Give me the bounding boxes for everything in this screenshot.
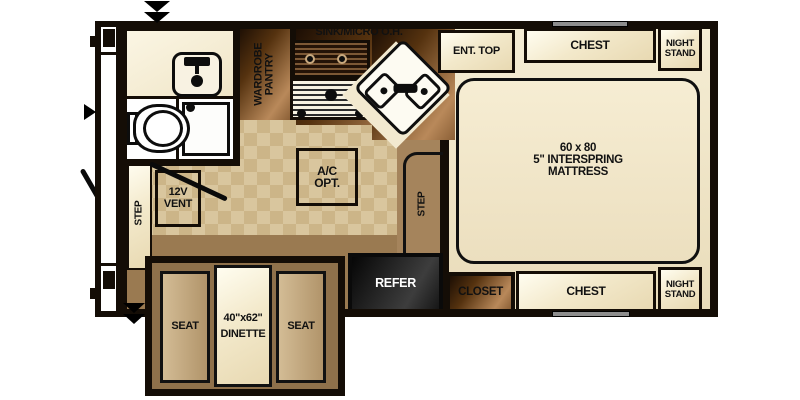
slide-arrow-icon xyxy=(123,303,145,313)
window-top xyxy=(552,21,628,27)
toilet-seat xyxy=(143,110,183,147)
faucet-icon xyxy=(393,84,417,93)
ac-opt-label: A/C OPT. xyxy=(314,165,339,189)
chest-top: CHEST xyxy=(524,28,656,63)
floorplan: WARDROBE PANTRY SINK/MICRO O.H. ENT. TOP… xyxy=(0,0,800,400)
front-step-label: STEP xyxy=(134,201,144,226)
right-wall xyxy=(710,21,718,317)
dinette-slide: SEAT 40"x62" DINETTE SEAT xyxy=(145,256,345,396)
night-stand-bottom-label: NIGHT STAND xyxy=(662,280,698,299)
roof-vent-arrow-icon xyxy=(144,12,170,23)
rear-wall-notch xyxy=(90,288,96,299)
burner-dot-icon xyxy=(305,54,315,64)
closet-label: CLOSET xyxy=(458,287,503,299)
front-step: STEP xyxy=(127,170,152,256)
dinette-table-label: 40"x62" DINETTE xyxy=(221,310,266,343)
refer-label: REFER xyxy=(375,277,416,290)
seat-left-label: SEAT xyxy=(171,321,198,332)
night-stand-top: NIGHT STAND xyxy=(658,27,702,71)
seat-right-label: SEAT xyxy=(287,321,314,332)
seat-left: SEAT xyxy=(160,271,210,383)
shower-drain-icon xyxy=(186,103,195,112)
window-bottom xyxy=(552,311,630,317)
wardrobe-pantry-label: WARDROBE PANTRY xyxy=(253,43,275,106)
sink-drain-icon xyxy=(191,75,203,87)
rear-wall-block xyxy=(103,29,115,47)
bathroom-sink-icon xyxy=(172,52,222,97)
burner-dot-icon xyxy=(325,89,337,101)
night-stand-bottom: NIGHT STAND xyxy=(658,267,702,312)
chest-bottom-label: CHEST xyxy=(566,285,605,297)
mattress-label: 60 x 80 5" INTERSPRING MATTRESS xyxy=(533,143,622,178)
night-stand-top-label: NIGHT STAND xyxy=(662,39,698,58)
faucet-icon xyxy=(184,57,210,66)
burner-dot-icon xyxy=(297,109,306,118)
ac-opt-box: A/C OPT. xyxy=(296,148,358,206)
chest-top-label: CHEST xyxy=(570,39,609,51)
chest-bottom: CHEST xyxy=(516,271,656,312)
bed-step: STEP xyxy=(403,160,441,248)
rear-wall-tick xyxy=(101,52,116,55)
burner-dot-icon xyxy=(337,54,347,64)
closet: CLOSET xyxy=(446,272,515,313)
roof-vent-arrow-icon xyxy=(144,1,170,12)
rear-wall-block xyxy=(103,271,115,289)
stove-icon xyxy=(292,40,370,78)
faucet-stem xyxy=(195,66,199,74)
seat-right: SEAT xyxy=(276,271,326,383)
ent-top-label: ENT. TOP xyxy=(453,46,500,57)
refer: REFER xyxy=(348,253,443,313)
rear-wall-channel xyxy=(101,27,116,311)
slide-arrow-icon xyxy=(123,314,145,324)
rear-wall-tick xyxy=(101,263,116,266)
ent-top-cabinet: ENT. TOP xyxy=(438,30,515,73)
twelve-v-vent-label: 12V VENT xyxy=(164,187,192,209)
mattress: 60 x 80 5" INTERSPRING MATTRESS xyxy=(456,78,700,264)
bed-step-label: STEP xyxy=(417,192,427,217)
side-marker-icon xyxy=(84,104,96,120)
wardrobe-pantry-cabinet: WARDROBE PANTRY xyxy=(238,29,290,120)
rear-wall-notch xyxy=(90,36,96,47)
dinette-table: 40"x62" DINETTE xyxy=(214,265,272,387)
